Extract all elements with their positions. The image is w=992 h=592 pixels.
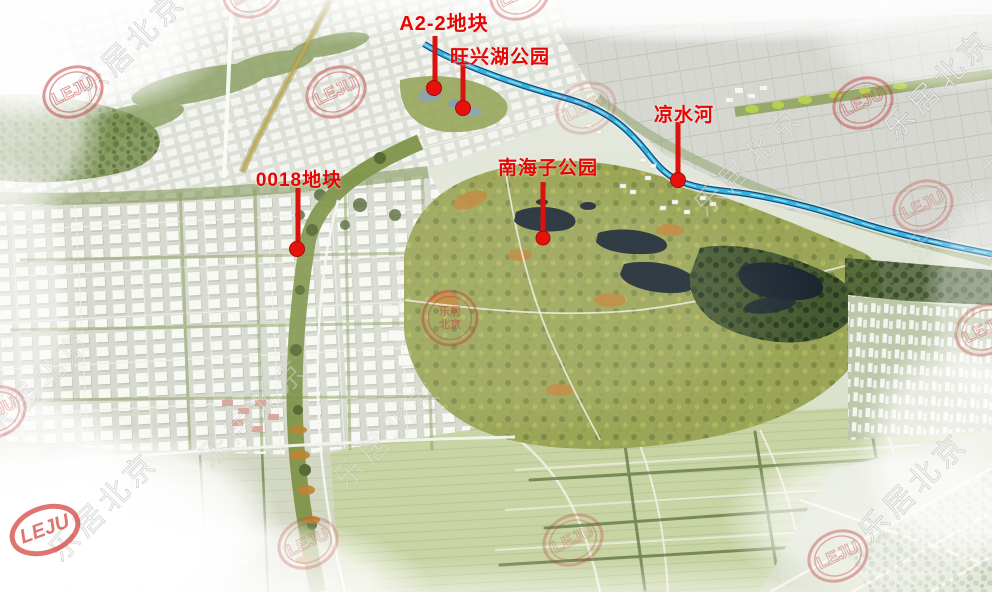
aerial-planning-map: 乐居北京 LEJU 乐居 北京 LEJU (0, 0, 992, 592)
annotation-label-0018-plot: 0018地块 (256, 165, 342, 192)
map-rendering: 乐居北京 LEJU 乐居 北京 LEJU (0, 0, 992, 592)
annotation-label-nanhaizi-park: 南海子公园 (498, 153, 598, 180)
annotation-label-wangxinghu-park: 旺兴湖公园 (450, 42, 550, 69)
annotation-label-a2-2-plot: A2-2地块 (399, 7, 488, 36)
annotation-label-liangshui-river: 凉水河 (654, 100, 714, 127)
